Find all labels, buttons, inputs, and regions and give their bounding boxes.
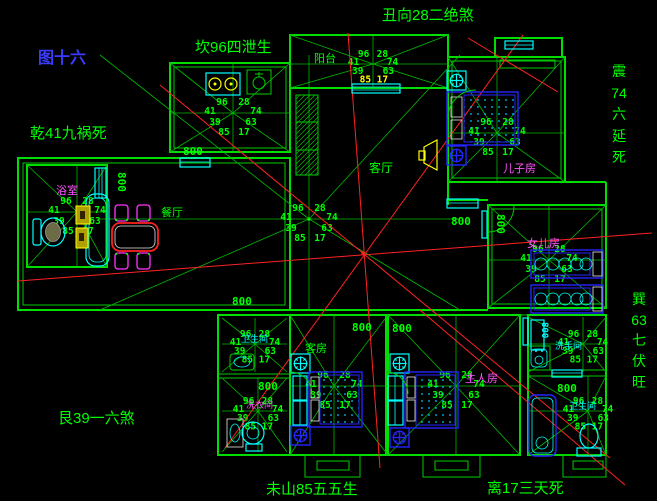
star-number: 85 bbox=[570, 355, 582, 366]
dimension-800: 800 bbox=[232, 295, 252, 308]
star-number: 41 bbox=[204, 106, 216, 117]
svg-text:74: 74 bbox=[611, 85, 627, 101]
room-star-living: 9628417439638517 bbox=[100, 55, 460, 310]
room-label-washroom: 洗手间 bbox=[555, 340, 582, 351]
bathtub-icon bbox=[529, 395, 556, 456]
svg-text:七: 七 bbox=[632, 332, 646, 348]
star-number: 41 bbox=[280, 212, 292, 223]
dining-set bbox=[112, 205, 158, 269]
cad-floorplan-canvas[interactable]: 9628417439638517 9628417439638517 962841… bbox=[0, 0, 660, 504]
room-label-living: 客厅 bbox=[369, 160, 393, 175]
annotation-kan: 坎96四泄生 bbox=[195, 39, 272, 56]
dimension-800: 800 bbox=[392, 322, 412, 335]
star-number: 17 bbox=[314, 233, 325, 244]
star-number: 85 bbox=[294, 233, 306, 244]
ceiling-fan-icon bbox=[291, 426, 310, 445]
star-number: 17 bbox=[587, 355, 598, 366]
figure-title: 图十六 bbox=[38, 48, 86, 67]
room-star-kitchen: 9628417439638517 bbox=[170, 63, 290, 152]
star-number: 41 bbox=[48, 205, 60, 216]
red-convergence-point bbox=[361, 251, 364, 254]
star-number: 74 bbox=[94, 205, 106, 216]
room-label-bath-left: 浴室 bbox=[56, 183, 78, 197]
star-number: 96 bbox=[60, 196, 72, 207]
svg-text:旺: 旺 bbox=[632, 374, 646, 390]
green-center-point bbox=[307, 217, 310, 220]
svg-text:巽: 巽 bbox=[632, 291, 646, 307]
dimension-800: 800 bbox=[352, 321, 372, 334]
dimension-800: 800 bbox=[451, 215, 471, 228]
star-number: 74 bbox=[326, 212, 338, 223]
dimension-800-vertical: 800 bbox=[539, 322, 549, 338]
svg-text:震: 震 bbox=[612, 63, 626, 79]
window-son-top bbox=[505, 41, 533, 49]
room-label-daughter: 女儿房 bbox=[527, 236, 560, 250]
room-label-dining: 餐厅 bbox=[161, 205, 183, 219]
star-number: 17 bbox=[238, 127, 249, 138]
star-number: 17 bbox=[259, 355, 270, 366]
room-label-bath-bl-top: 卫生间 bbox=[241, 333, 268, 344]
room-label-balcony: 阳台 bbox=[314, 51, 336, 65]
dimension-800: 800 bbox=[183, 145, 203, 158]
annotation-qian: 乾41九祸死 bbox=[30, 125, 107, 142]
star-number: 74 bbox=[514, 126, 526, 137]
svg-text:死: 死 bbox=[612, 149, 626, 165]
star-number: 85 bbox=[242, 355, 254, 366]
star-number: 96 bbox=[358, 49, 370, 60]
star-number: 28 bbox=[238, 97, 250, 108]
kitchen-stove-icon bbox=[206, 73, 240, 95]
ceiling-fan-icon bbox=[447, 71, 466, 90]
dimension-800: 800 bbox=[557, 382, 577, 395]
star-number: 74 bbox=[250, 106, 262, 117]
annotation-zhen-vertical: 震 74 六 延 死 bbox=[611, 63, 627, 165]
star-number: 96 bbox=[292, 203, 304, 214]
master-room-furniture bbox=[386, 354, 458, 447]
annotation-xun-vertical: 巽 63 七 伏 旺 bbox=[631, 291, 647, 390]
svg-text:63: 63 bbox=[631, 312, 647, 328]
dimension-800-vertical: 800 bbox=[494, 214, 507, 234]
svg-text:六: 六 bbox=[612, 106, 626, 122]
room-label-guest: 客房 bbox=[305, 341, 327, 355]
annotation-wei: 未山85五五生 bbox=[266, 481, 358, 498]
dimension-800: 800 bbox=[258, 380, 278, 393]
floorplan-drawing: 9628417439638517 9628417439638517 962841… bbox=[0, 0, 660, 504]
star-number: 85 bbox=[534, 274, 546, 285]
svg-text:延: 延 bbox=[612, 128, 626, 144]
guest-room-furniture bbox=[290, 354, 362, 445]
annotation-chou: 丑向28二绝煞 bbox=[382, 7, 474, 24]
svg-text:伏: 伏 bbox=[632, 353, 646, 369]
star-number: 17 bbox=[502, 147, 513, 158]
ceiling-fan-icon bbox=[390, 354, 409, 373]
ceiling-fan-icon bbox=[447, 146, 466, 165]
tv-speaker-icon bbox=[419, 140, 437, 170]
ceiling-fan-icon bbox=[291, 354, 310, 373]
room-label-master: 主人房 bbox=[465, 372, 498, 385]
star-number: 41 bbox=[520, 253, 532, 264]
annotation-gen: 艮39一六煞 bbox=[58, 410, 135, 427]
star-number: 17 bbox=[554, 274, 565, 285]
living-plant-icon bbox=[296, 95, 318, 175]
annotation-li: 离17三天死 bbox=[487, 480, 564, 497]
star-number: 85 bbox=[218, 127, 230, 138]
star-number: 96 bbox=[568, 329, 580, 340]
dining-chairs bbox=[115, 205, 150, 269]
star-number: 96 bbox=[216, 97, 228, 108]
dimension-800-vertical: 800 bbox=[115, 172, 128, 192]
room-label-bath-br: 卫生间 bbox=[569, 400, 596, 411]
star-number: 17 bbox=[461, 400, 472, 411]
room-label-laundry: 洗衣间 bbox=[246, 399, 273, 410]
room-label-son: 儿子房 bbox=[503, 162, 536, 175]
wardrobe bbox=[388, 376, 403, 400]
window-daughter-room bbox=[482, 211, 487, 238]
star-number: 28 bbox=[314, 203, 326, 214]
ceiling-fan-icon bbox=[390, 428, 409, 447]
star-number: 85 bbox=[482, 147, 494, 158]
